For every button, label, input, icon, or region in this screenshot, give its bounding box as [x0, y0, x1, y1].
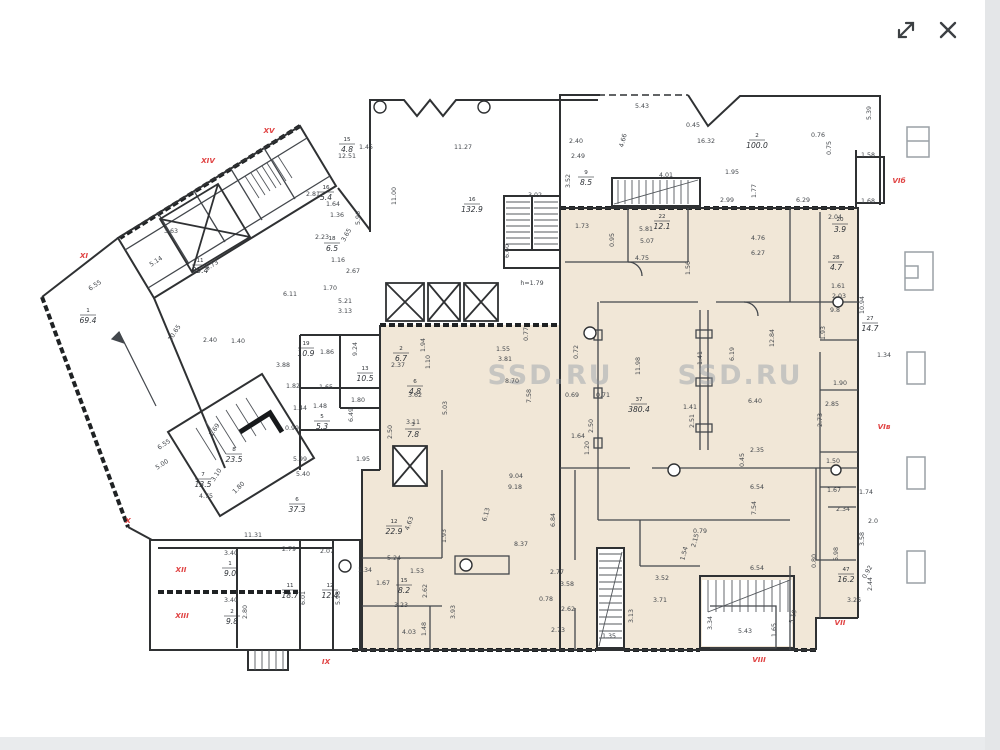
- dim: 1.58: [861, 152, 875, 159]
- dim: 6.84: [550, 513, 557, 527]
- dim: 4.75: [199, 493, 213, 500]
- room-area: 4.7: [830, 263, 842, 272]
- dim: 2.40: [203, 337, 217, 344]
- room-num: 28: [832, 255, 840, 261]
- dim: 1.95: [725, 169, 739, 176]
- watermark: SSD.RU: [487, 360, 612, 391]
- dim: 1.64: [326, 201, 340, 208]
- dim: 5.39: [866, 106, 873, 120]
- floor-plan: SSD.RU SSD.RU 3.635.146.559.7310.652.401…: [0, 0, 1000, 750]
- dim: 6.40: [748, 398, 762, 405]
- dim: 1.53: [410, 568, 424, 575]
- dim: 1.86: [320, 349, 334, 356]
- dim: 5.43: [635, 103, 649, 110]
- dim: 2.50: [588, 419, 595, 433]
- dim: 0.76: [811, 132, 825, 139]
- dim: 4.76: [751, 235, 765, 242]
- dim: 12.51: [338, 153, 356, 160]
- dim: 5.81: [639, 226, 653, 233]
- dim: 1.80: [351, 397, 365, 404]
- dim: 11.31: [244, 532, 262, 539]
- dim: 1.67: [827, 487, 841, 494]
- dim: 11.00: [391, 187, 398, 205]
- dim: 1.44: [293, 405, 307, 412]
- dim: 3.65: [340, 227, 353, 243]
- dim: 3.40: [224, 597, 238, 604]
- dim: 1.69: [208, 422, 222, 438]
- dim: 1.93: [820, 326, 827, 340]
- dim: 3.93: [450, 605, 457, 619]
- dim: 1.40: [231, 338, 245, 345]
- expand-button[interactable]: [890, 14, 922, 46]
- red-label: XI: [79, 251, 89, 260]
- dim: 5.40: [296, 471, 310, 478]
- red-label: XIV: [200, 156, 216, 165]
- dim: 1.93: [441, 529, 448, 543]
- dim: 3.52: [655, 575, 669, 582]
- north-arrow: [112, 332, 156, 406]
- room-num: 18: [328, 236, 336, 242]
- dim: 0.45: [739, 453, 746, 467]
- red-label: IX: [322, 657, 331, 666]
- dim: 5.43: [738, 628, 752, 635]
- dim: 3.13: [338, 308, 352, 315]
- dim: 4.03: [402, 629, 416, 636]
- room-area: 23.5: [226, 455, 243, 464]
- dim: 2.03: [832, 293, 846, 300]
- dim: 2.77: [550, 569, 564, 576]
- dim: 0.78: [539, 596, 553, 603]
- dim: 0.95: [609, 233, 616, 247]
- room-num: 3: [411, 422, 415, 428]
- red-label: XIII: [174, 611, 189, 620]
- dim: 1.65: [771, 623, 778, 637]
- dim: 9.18: [508, 484, 522, 491]
- room-area: 100.0: [746, 141, 768, 150]
- dim: 2.73: [817, 413, 824, 427]
- room-area: 4.8: [341, 145, 353, 154]
- dim: 1.90: [833, 380, 847, 387]
- room-num: 16: [468, 197, 476, 203]
- room-area: 5.3: [316, 422, 328, 431]
- dim: 4.66: [618, 133, 628, 148]
- dim: 3.23: [394, 602, 408, 609]
- room-area: 12.4: [322, 591, 339, 600]
- dim: 1.48: [421, 622, 428, 636]
- room-num: 16: [322, 185, 330, 191]
- dim: 5.99: [293, 456, 307, 463]
- dim: 0.45: [686, 122, 700, 129]
- room-area: 14.7: [862, 324, 879, 333]
- room-num: 2: [755, 133, 759, 139]
- red-label: X: [124, 516, 131, 525]
- room-area: 8.2: [398, 586, 410, 595]
- dim: 1.35: [602, 633, 616, 640]
- dim: 2.37: [391, 362, 405, 369]
- room-area: 9.0: [224, 569, 236, 578]
- room-area: 5.4: [320, 193, 332, 202]
- dim: 3.88: [276, 362, 290, 369]
- dim: 3.13: [628, 609, 635, 623]
- room-num: 6: [413, 379, 417, 385]
- room-area: 7.8: [407, 430, 419, 439]
- dim: 5.03: [442, 401, 449, 415]
- dim: 6.19: [729, 347, 736, 361]
- room-area: 13.5: [195, 480, 212, 489]
- room-num: 11: [196, 258, 204, 264]
- dim: 2.40: [569, 138, 583, 145]
- dim: 2.62: [422, 584, 429, 598]
- dim: 1.67: [376, 580, 390, 587]
- dim: 2.50: [387, 425, 394, 439]
- dim: 1.80: [232, 481, 247, 496]
- dim: h=1.79: [520, 280, 543, 287]
- dim: 3.10: [210, 467, 224, 483]
- dim: 9.24: [352, 342, 359, 356]
- dim: 1.36: [330, 212, 344, 219]
- dim: 2.23: [315, 234, 329, 241]
- room-area: 10.9: [298, 349, 315, 358]
- room-num: 12: [390, 519, 397, 525]
- close-button[interactable]: [932, 14, 964, 46]
- dim: 12.84: [769, 329, 776, 347]
- dim: 1.82: [286, 383, 300, 390]
- room-num: 13: [361, 366, 369, 372]
- room-area: 380.4: [628, 405, 650, 414]
- dim: 6.60: [504, 244, 511, 258]
- dim: 6.54: [750, 484, 764, 491]
- room-area: 22.9: [386, 527, 403, 536]
- dim: 2.73: [551, 627, 565, 634]
- room-area: 132.9: [461, 205, 483, 214]
- room-area: 8.5: [580, 178, 592, 187]
- red-label: VIб: [892, 176, 905, 185]
- close-icon: [937, 19, 959, 41]
- dim: 6.55: [156, 438, 172, 452]
- dim: 2.44: [867, 577, 874, 591]
- dim: 4.75: [635, 255, 649, 262]
- dim: 10.94: [859, 296, 866, 314]
- dim: 2.0: [868, 518, 878, 525]
- dim: 2.35: [750, 447, 764, 454]
- dim: 11.98: [635, 357, 642, 375]
- dim: 5.07: [640, 238, 654, 245]
- dim: 1.34: [358, 567, 372, 574]
- dim: 6.55: [87, 279, 103, 293]
- dim: 2.85: [825, 401, 839, 408]
- room-num: 27: [866, 316, 874, 322]
- dim: 1.10: [425, 355, 432, 369]
- dim: 3.34: [707, 616, 714, 630]
- dim: 6.54: [750, 565, 764, 572]
- red-label: VII: [835, 618, 846, 627]
- dim: 7.54: [751, 501, 758, 515]
- red-label: XII: [175, 565, 187, 574]
- dim: 0.99: [285, 425, 299, 432]
- red-label: VIII: [752, 655, 766, 664]
- dim: 3.71: [653, 597, 667, 604]
- dim: 2.79: [282, 546, 296, 553]
- room-num: 12: [326, 583, 333, 589]
- dim: 9.04: [509, 473, 523, 480]
- dim: 1.41: [683, 404, 697, 411]
- dim: 1.74: [859, 489, 873, 496]
- dim: 1.16: [331, 257, 345, 264]
- room-num: 6: [295, 497, 299, 503]
- dim: 0.79: [693, 528, 707, 535]
- dim: 5.96: [355, 211, 362, 225]
- dim: 2.07: [320, 548, 334, 555]
- dim: 1.61: [831, 283, 845, 290]
- dim: 1.41: [697, 351, 704, 365]
- dim: 3.52: [565, 174, 572, 188]
- room-num: 5: [320, 414, 324, 420]
- dim: 1.48: [313, 403, 327, 410]
- dim: 1.34: [877, 352, 891, 359]
- room-area: 18.7: [282, 591, 299, 600]
- dim: 0.71: [596, 392, 610, 399]
- dim: 1.95: [356, 456, 370, 463]
- dim: 6.27: [751, 250, 765, 257]
- room-num: 1: [228, 561, 232, 567]
- dim: 2.81: [306, 191, 320, 198]
- dim: 2.34: [836, 506, 850, 513]
- room-area: 6.7: [395, 354, 407, 363]
- dim: 6.11: [283, 291, 297, 298]
- red-label: XV: [262, 126, 276, 135]
- dim: 1.77: [751, 184, 758, 198]
- room-num: 22: [658, 214, 665, 220]
- room-area: 12.1: [654, 222, 671, 231]
- dim: 1.55: [496, 346, 510, 353]
- dim: 1.70: [323, 285, 337, 292]
- room-area: 10.5: [357, 374, 374, 383]
- room-num: 15: [400, 578, 408, 584]
- room-num: 7: [201, 472, 205, 478]
- dim: 6.01: [300, 591, 307, 605]
- room-num: 2: [399, 346, 403, 352]
- dim: 8.70: [505, 378, 519, 385]
- red-label: VIв: [878, 422, 891, 431]
- dim: 5.00: [154, 458, 170, 472]
- dim: 5.21: [338, 298, 352, 305]
- dim: 3.40: [224, 550, 238, 557]
- dim: 6.29: [796, 197, 810, 204]
- room-num: 15: [343, 137, 351, 143]
- room-num: 2: [230, 609, 234, 615]
- dim: 5.14: [148, 255, 164, 269]
- dim: 3.26: [847, 597, 861, 604]
- room-area: 35.4: [192, 266, 209, 275]
- dim: 16.32: [697, 138, 715, 145]
- dim: 0.80: [811, 554, 818, 568]
- dim: 1.45: [359, 144, 373, 151]
- dim: 0.69: [565, 392, 579, 399]
- expand-icon: [895, 19, 917, 41]
- dim: 0.77: [523, 327, 530, 341]
- room-num: 37: [635, 397, 643, 403]
- dim: 1.56: [685, 261, 692, 275]
- room-num: 11: [286, 583, 294, 589]
- dim: 2.62: [561, 606, 575, 613]
- room-num: 8: [232, 447, 236, 453]
- dim: 3.81: [498, 356, 512, 363]
- dim: 1.68: [861, 198, 875, 205]
- room-area: 69.4: [80, 316, 97, 325]
- dim: 3.02: [528, 192, 542, 199]
- room-num: 19: [302, 341, 310, 347]
- dim: 5.24: [387, 555, 401, 562]
- room-area: 9.8: [226, 617, 238, 626]
- dim: 3.63: [164, 228, 178, 235]
- dim: 1.50: [826, 458, 840, 465]
- dim: 2.67: [346, 268, 360, 275]
- room-num: 47: [842, 567, 850, 573]
- room-num: 20: [836, 217, 844, 223]
- dim: 4.01: [659, 172, 673, 179]
- room-area: 3.9: [834, 225, 846, 234]
- room-num: 1: [86, 308, 90, 314]
- dim: 1.94: [420, 338, 427, 352]
- room-area: 37.3: [289, 505, 306, 514]
- dim: 2.99: [720, 197, 734, 204]
- dim: 9.8: [830, 307, 840, 314]
- dim: 1.65: [319, 384, 333, 391]
- room-area: 6.5: [326, 244, 338, 253]
- room-num: 9: [584, 170, 588, 176]
- dim: 8.37: [514, 541, 528, 548]
- room-area: 16.2: [838, 575, 855, 584]
- dim: 7.58: [526, 389, 533, 403]
- dim: 3.58: [560, 581, 574, 588]
- site-markers: [905, 127, 933, 583]
- dim: 0.72: [573, 345, 580, 359]
- dim: 0.75: [826, 141, 833, 155]
- dim: 2.80: [242, 605, 249, 619]
- dim: 1.64: [571, 433, 585, 440]
- dim: 1.73: [575, 223, 589, 230]
- dim: 6.49: [348, 408, 355, 422]
- dim: 5.98: [833, 547, 840, 561]
- dim: 3.58: [859, 532, 866, 546]
- dim: 2.51: [689, 414, 696, 428]
- dim: 2.49: [571, 153, 585, 160]
- dim: 11.27: [454, 144, 472, 151]
- room-area: 4.8: [409, 387, 421, 396]
- dim: 1.20: [584, 441, 591, 455]
